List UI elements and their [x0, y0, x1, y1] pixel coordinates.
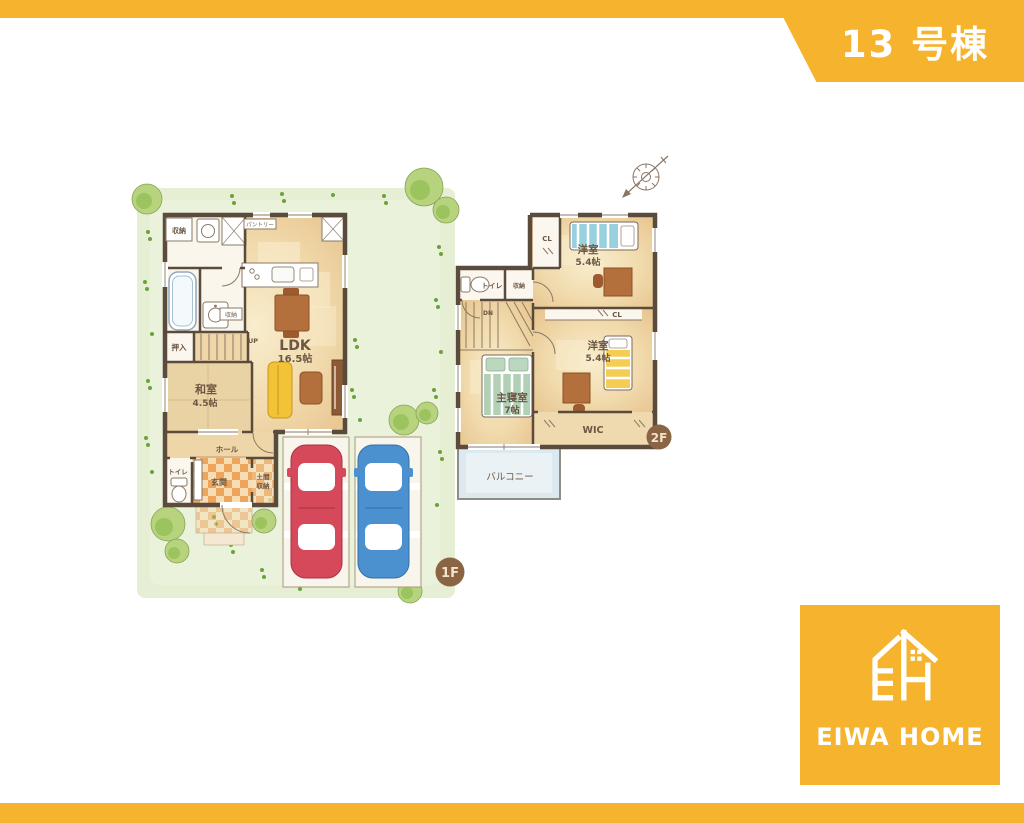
floor1-badge: 1F — [436, 558, 465, 587]
floor1-badge-label: 1F — [441, 566, 459, 581]
label-genkan: 玄関 — [211, 477, 227, 487]
label-toilet-1f: トイレ — [168, 468, 188, 476]
dining-table-icon — [275, 288, 309, 338]
label-bedroom-b-size: 5.4帖 — [586, 352, 611, 364]
tile-square-icon — [322, 217, 344, 241]
label-master-size: 7帖 — [504, 404, 519, 416]
label-doma-1: 土間 — [257, 472, 271, 481]
red-car-icon — [287, 445, 346, 578]
label-washitsu-size: 4.5帖 — [193, 397, 218, 409]
entrance-porch — [196, 505, 252, 545]
shower-tile-icon — [222, 217, 246, 245]
floor2-badge-label: 2F — [651, 431, 668, 445]
label-bedroom-a-size: 5.4帖 — [576, 256, 601, 268]
label-master: 主寝室 — [496, 391, 528, 404]
label-wic: WIC — [583, 425, 604, 436]
toilet-icon — [171, 478, 187, 502]
floor2-badge: 2F — [647, 425, 672, 450]
floor2-plan: CL 洋室 5.4帖 トイレ 収納 DN CL 洋室 5.4帖 主寝室 7帖 W… — [455, 156, 672, 499]
shoe-cabinet — [194, 460, 202, 500]
label-pantry: パントリー — [246, 222, 274, 229]
brand-name: EIWA HOME — [816, 723, 983, 751]
label-dn: DN — [483, 310, 493, 317]
washing-machine-icon — [197, 219, 219, 242]
bathtub-icon — [169, 272, 196, 330]
tree-icon — [132, 184, 162, 214]
brand-logo-block: EIWA HOME — [800, 605, 1000, 785]
tree-icon — [433, 197, 459, 223]
tree-icon — [151, 507, 185, 541]
bottom-orange-bar — [0, 803, 1024, 823]
label-storage-top: 収納 — [172, 226, 186, 235]
label-doma-2: 収納 — [257, 481, 271, 490]
label-washitsu: 和室 — [195, 382, 217, 396]
label-bedroom-b: 洋室 — [588, 339, 609, 352]
label-oshiire: 押入 — [172, 342, 187, 352]
label-hall: ホール — [216, 445, 239, 454]
label-balcony: バルコニー — [486, 472, 533, 483]
coffee-table-icon — [300, 372, 322, 404]
compass-icon — [622, 156, 668, 198]
label-toilet-2f: トイレ — [482, 282, 503, 290]
label-bedroom-a: 洋室 — [578, 243, 599, 256]
flyer-page: 13 号棟 — [0, 0, 1024, 823]
kitchen-counter — [242, 263, 318, 287]
tree-icon — [416, 402, 438, 424]
label-ldk: LDK — [279, 338, 312, 354]
label-ldk-size: 16.5帖 — [278, 352, 313, 365]
label-storage-wash: 収納 — [225, 311, 237, 319]
sofa-icon — [268, 362, 292, 418]
eiwa-home-logo-icon — [852, 621, 948, 717]
tree-icon — [389, 405, 419, 435]
label-storage-2f: 収納 — [513, 282, 525, 290]
label-up: UP — [248, 337, 258, 345]
floor1-plan: 収納 パントリー 収納 LDK 16.5帖 押入 UP 和室 4.5帖 ホール … — [132, 168, 465, 603]
label-cl-a: CL — [542, 235, 552, 243]
blue-car-icon — [354, 445, 413, 578]
label-cl-b: CL — [612, 311, 622, 319]
tree-icon — [252, 509, 276, 533]
tree-icon — [165, 539, 189, 563]
